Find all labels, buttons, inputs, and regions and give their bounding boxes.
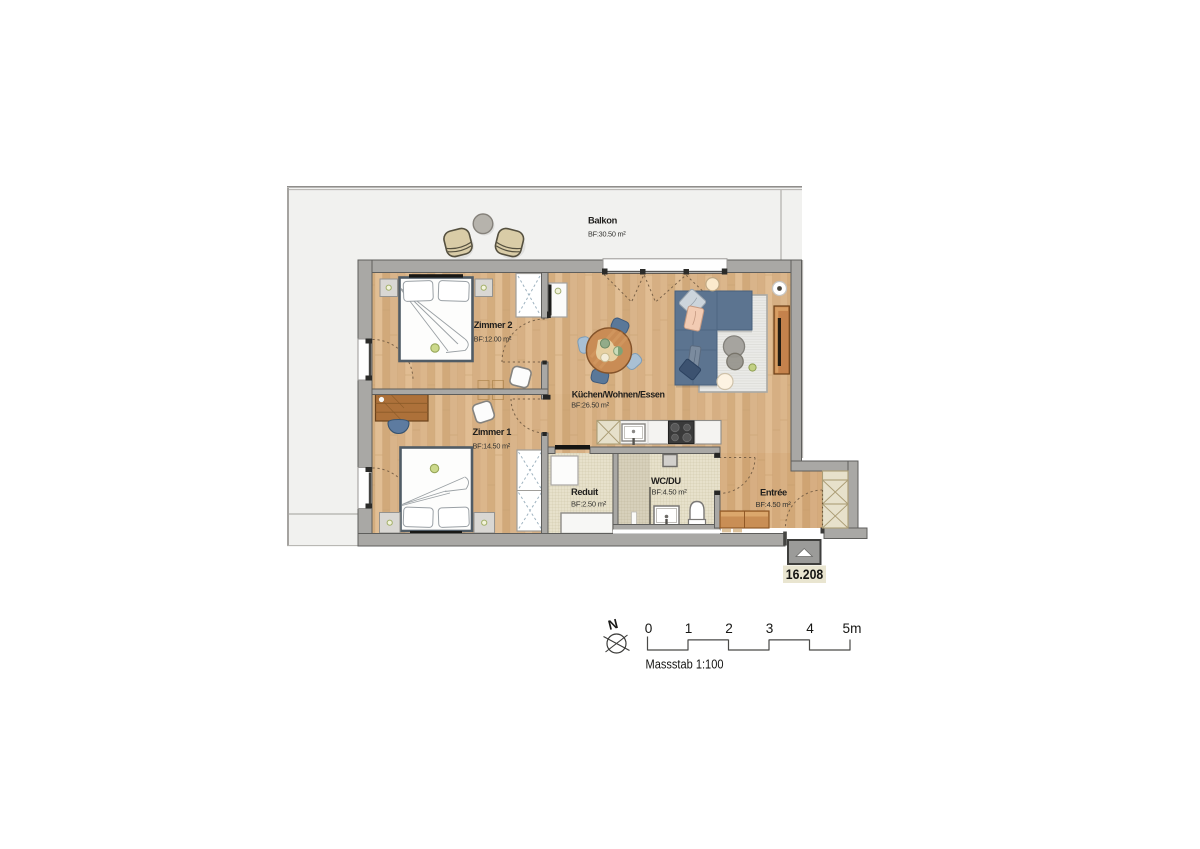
svg-text:Entrée: Entrée	[760, 488, 787, 498]
svg-text:Zimmer 2: Zimmer 2	[474, 320, 513, 330]
svg-text:BF:12.00 m²: BF:12.00 m²	[474, 335, 512, 344]
svg-text:16.208: 16.208	[786, 567, 824, 582]
svg-text:4: 4	[806, 621, 814, 636]
svg-text:BF:30.50 m²: BF:30.50 m²	[588, 229, 626, 238]
svg-text:Zimmer 1: Zimmer 1	[473, 427, 512, 437]
svg-text:BF:4.50 m²: BF:4.50 m²	[756, 500, 792, 509]
svg-text:Küchen/Wohnen/Essen: Küchen/Wohnen/Essen	[572, 390, 666, 400]
svg-text:0: 0	[645, 621, 653, 636]
svg-text:Balkon: Balkon	[588, 216, 618, 226]
svg-text:WC/DU: WC/DU	[651, 476, 681, 486]
svg-text:BF:14.50 m²: BF:14.50 m²	[473, 441, 511, 450]
svg-text:BF:4.50 m²: BF:4.50 m²	[652, 488, 688, 497]
svg-text:BF:2.50 m²: BF:2.50 m²	[571, 500, 607, 509]
svg-text:3: 3	[766, 621, 774, 636]
svg-text:5m: 5m	[843, 621, 862, 636]
svg-text:Massstab 1:100: Massstab 1:100	[646, 658, 724, 672]
svg-text:BF:26.50 m²: BF:26.50 m²	[571, 401, 609, 410]
svg-text:2: 2	[725, 621, 733, 636]
svg-text:Reduit: Reduit	[571, 487, 598, 497]
svg-text:1: 1	[685, 621, 693, 636]
